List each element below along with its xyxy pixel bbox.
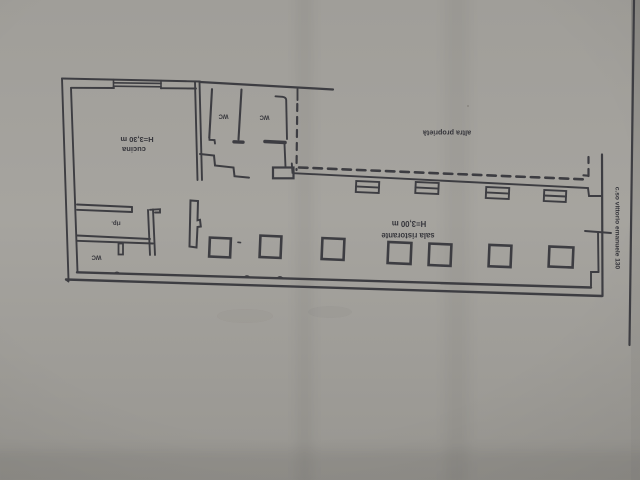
svg-text:H=3,00 m: H=3,00 m	[392, 219, 427, 228]
svg-text:rip.: rip.	[111, 220, 121, 226]
svg-text:cucina: cucina	[121, 145, 146, 154]
svg-text:c.so vittorio emanuele 130: c.so vittorio emanuele 130	[614, 187, 621, 270]
svg-text:WC: WC	[259, 114, 270, 120]
svg-text:altra proprietà: altra proprietà	[422, 129, 471, 138]
svg-text:sala ristorante: sala ristorante	[381, 231, 435, 240]
svg-text:WC: WC	[218, 112, 229, 118]
svg-text:H=3,30 m: H=3,30 m	[120, 135, 153, 144]
svg-text:WC: WC	[91, 254, 102, 260]
